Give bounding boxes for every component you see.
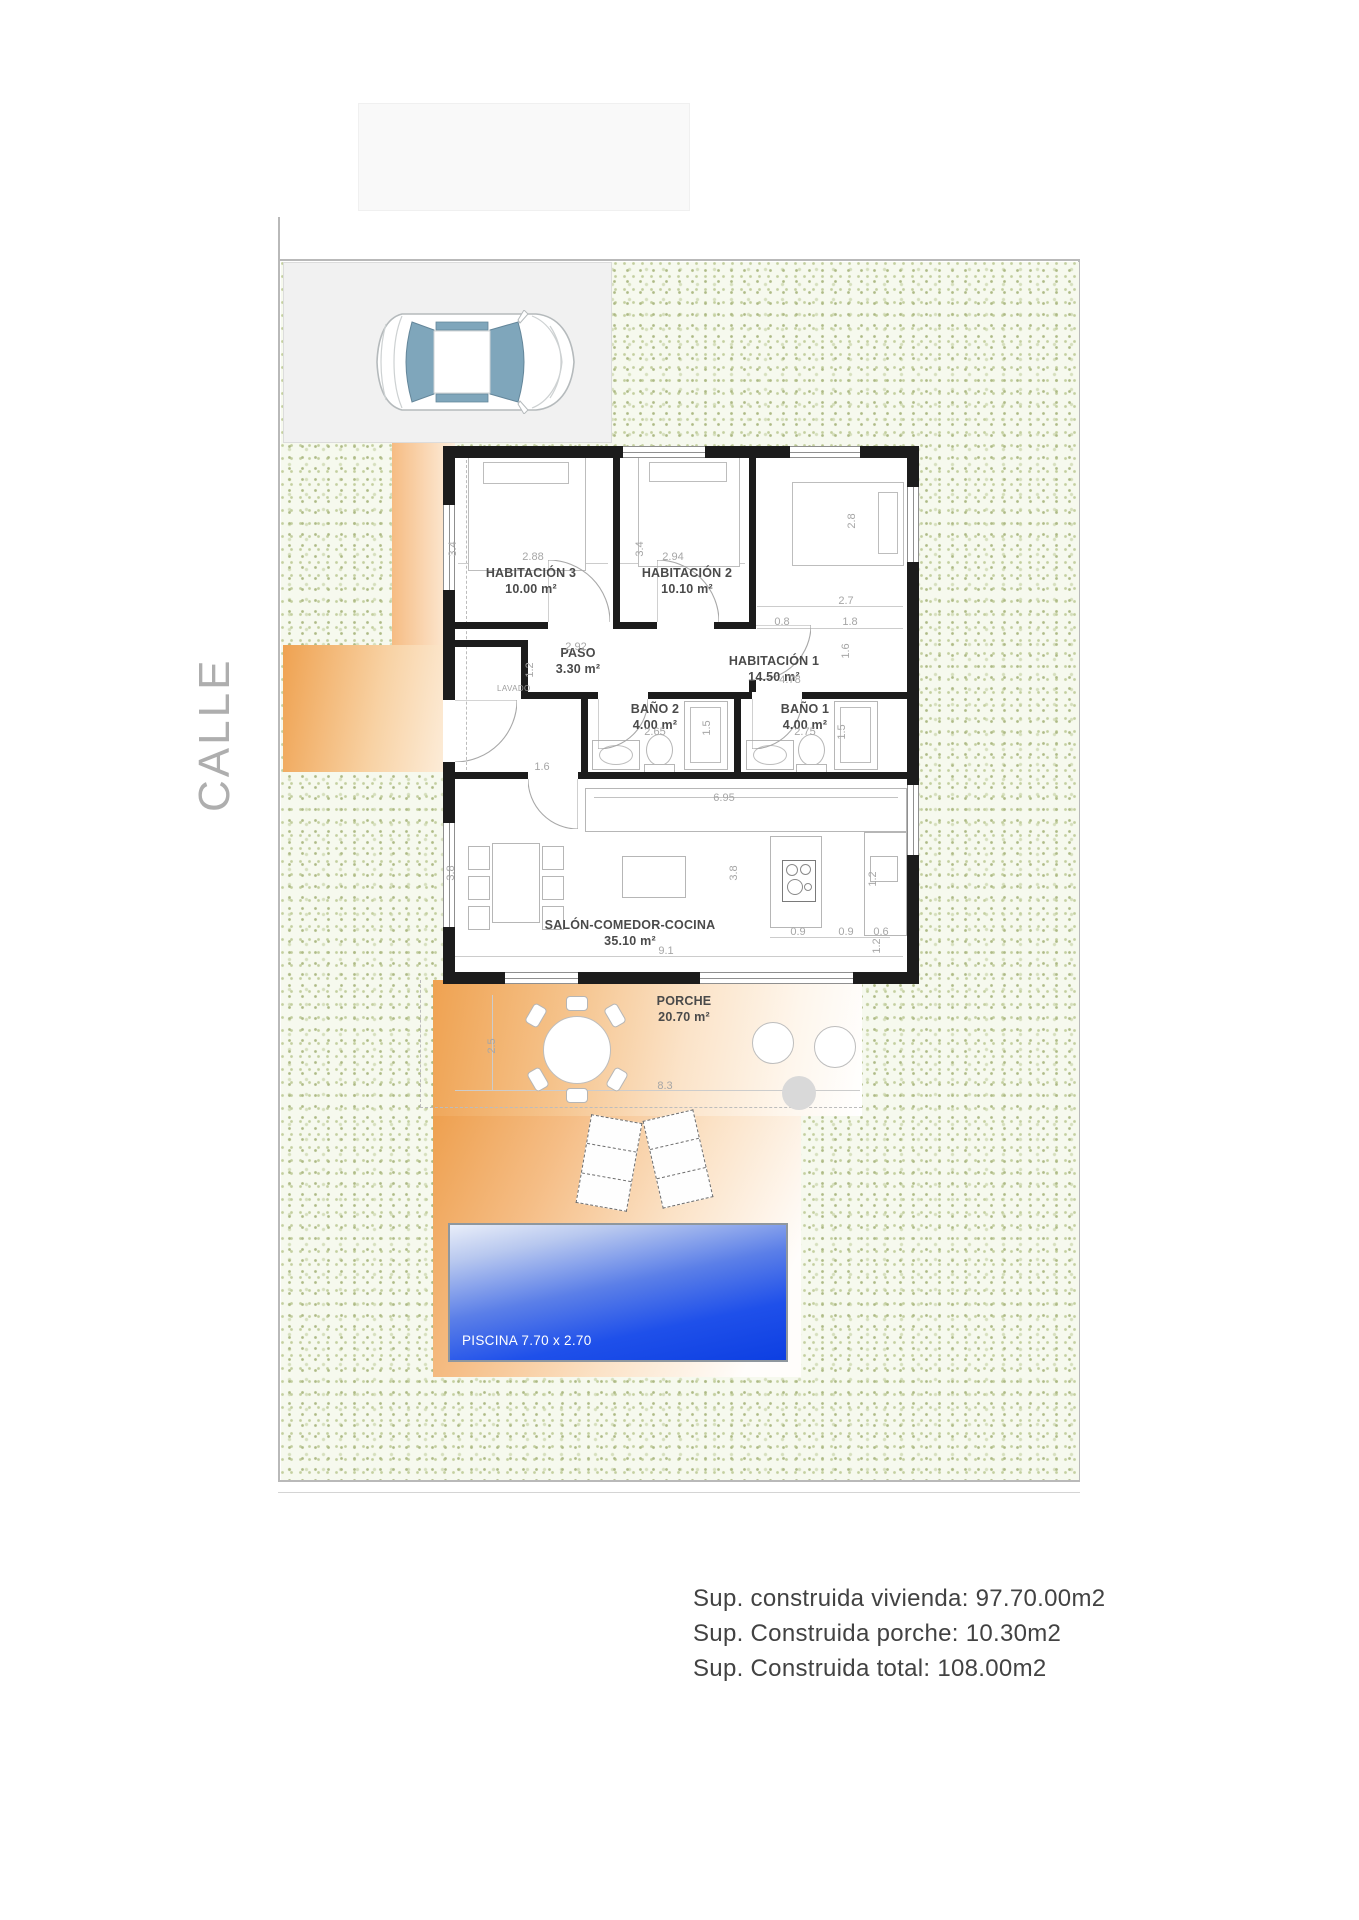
car-top-view-icon — [372, 310, 578, 414]
wall-interior — [521, 692, 598, 699]
kitchen-counter — [585, 788, 907, 832]
wall — [705, 446, 790, 458]
plot-boundary-left — [278, 217, 280, 1480]
dimension-label: 0.6 — [873, 926, 888, 938]
pool-label: PISCINA 7.70 x 2.70 — [462, 1333, 592, 1348]
lounge-chair — [752, 1022, 794, 1064]
porch-round-table — [543, 1016, 611, 1084]
toilet-bano-2 — [646, 734, 673, 766]
wall-interior — [802, 692, 919, 699]
room-label-habitacion-3: HABITACIÓN 3 10.00 m² — [451, 566, 611, 597]
door-arc-entry — [455, 700, 517, 762]
dimension-label: 2.92 — [565, 641, 586, 653]
dining-chair — [468, 906, 490, 930]
room-label-lavado: LAVADO — [497, 684, 531, 693]
room-name: PORCHE — [614, 994, 754, 1010]
room-name: HABITACIÓN 2 — [614, 566, 760, 582]
dimension-label: 1.6 — [840, 643, 852, 658]
wall — [578, 972, 700, 984]
dimension-label: 2.8 — [846, 513, 858, 528]
dimension-line — [455, 956, 903, 957]
dimension-label: 3.8 — [445, 865, 457, 880]
dimension-label: 3.8 — [728, 865, 740, 880]
window — [623, 446, 705, 458]
dimension-label: 3.4 — [447, 541, 459, 556]
wall-interior — [714, 622, 756, 629]
dimension-label: 2.7 — [838, 595, 853, 607]
dimension-label: 1.5 — [836, 724, 848, 739]
room-label-habitacion-2: HABITACIÓN 2 10.10 m² — [614, 566, 760, 597]
dimension-label: 1.2 — [524, 662, 536, 677]
wall-interior — [578, 772, 919, 779]
bed-habitacion-2 — [638, 455, 740, 567]
room-area: 20.70 m² — [614, 1010, 754, 1026]
door-arc-hall — [528, 779, 578, 829]
wall-interior — [648, 692, 752, 699]
wall — [443, 446, 455, 505]
wall — [907, 562, 919, 785]
dimension-label: 4.78 — [779, 674, 800, 686]
wall-interior — [613, 622, 657, 629]
room-name: BAÑO 1 — [745, 702, 865, 718]
wall — [853, 972, 919, 984]
room-label-salon: SALÓN-COMEDOR-COCINA 35.10 m² — [520, 918, 740, 949]
dimension-label: 0.8 — [774, 616, 789, 628]
window — [505, 972, 578, 984]
dimension-label: 1.8 — [842, 616, 857, 628]
room-label-porche: PORCHE 20.70 m² — [614, 994, 754, 1025]
dimension-label: 1.2 — [867, 871, 879, 886]
dining-chair — [542, 876, 564, 900]
dimension-label: 1.6 — [534, 761, 549, 773]
dimension-label: 2.5 — [486, 1038, 498, 1053]
porch-chair — [566, 996, 588, 1011]
dimension-label: 9.1 — [658, 945, 673, 957]
room-name: HABITACIÓN 3 — [451, 566, 611, 582]
dining-chair — [468, 846, 490, 870]
room-area: 10.00 m² — [451, 582, 611, 598]
wall-interior — [734, 699, 741, 772]
room-area: 35.10 m² — [520, 934, 740, 950]
wall-interior — [443, 772, 528, 779]
entry-path — [283, 645, 455, 772]
dimension-label: 6.95 — [713, 792, 734, 804]
floor-plan-page: PISCINA 7.70 x 2.70 — [0, 0, 1359, 1920]
dimension-line — [757, 606, 903, 607]
porch-roof-line-left — [420, 980, 421, 1107]
wall — [443, 590, 455, 700]
dimension-label: 0.9 — [790, 926, 805, 938]
dimension-label: 3.4 — [634, 541, 646, 556]
window — [907, 487, 919, 562]
room-area: 3.30 m² — [518, 662, 638, 678]
dimension-label: 8.3 — [657, 1080, 672, 1092]
window — [790, 446, 860, 458]
dimension-label: 2.88 — [522, 551, 543, 563]
window-slider — [700, 972, 853, 984]
room-name: HABITACIÓN 1 — [694, 654, 854, 670]
dimension-label: 1.2 — [871, 938, 883, 953]
wall — [907, 855, 919, 984]
room-name: BAÑO 2 — [595, 702, 715, 718]
lounge-chair — [814, 1026, 856, 1068]
wall — [443, 972, 505, 984]
stove-icon — [782, 860, 816, 902]
plot-boundary-bottom — [278, 1480, 1080, 1482]
coffee-table — [622, 856, 686, 898]
built-area-summary: Sup. construida vivienda: 97.70.00m2 Sup… — [693, 1581, 1105, 1686]
wall-interior — [581, 699, 588, 772]
room-name: SALÓN-COMEDOR-COCINA — [520, 918, 740, 934]
summary-line-vivienda: Sup. construida vivienda: 97.70.00m2 — [693, 1581, 1105, 1616]
dimension-label: 2.75 — [794, 726, 815, 738]
wall-interior — [455, 640, 521, 647]
street-label: CALLE — [190, 658, 240, 812]
dimension-label: 1.5 — [701, 720, 713, 735]
dimension-label: 2.94 — [662, 551, 683, 563]
wall — [907, 446, 919, 487]
dimension-label: 2.65 — [644, 726, 665, 738]
side-table — [782, 1076, 816, 1110]
room-area: 14.50 m² — [694, 670, 854, 686]
porch-chair — [566, 1088, 588, 1103]
wall-interior — [749, 446, 756, 625]
room-label-habitacion-1: HABITACIÓN 1 14.50 m² — [694, 654, 854, 685]
dining-chair — [542, 846, 564, 870]
plot-boundary-top — [278, 259, 1080, 261]
wall — [443, 446, 623, 458]
dining-table — [492, 843, 540, 923]
summary-line-total: Sup. Construida total: 108.00m2 — [693, 1651, 1105, 1686]
dining-chair — [468, 876, 490, 900]
wall-interior — [455, 622, 548, 629]
neighbor-outline — [358, 103, 690, 211]
dimension-label: 0.9 — [838, 926, 853, 938]
window — [907, 785, 919, 855]
toilet-bano-1 — [798, 734, 825, 766]
plot-boundary-bottom-2 — [278, 1492, 1080, 1493]
room-area: 10.10 m² — [614, 582, 760, 598]
summary-line-porche: Sup. Construida porche: 10.30m2 — [693, 1616, 1105, 1651]
